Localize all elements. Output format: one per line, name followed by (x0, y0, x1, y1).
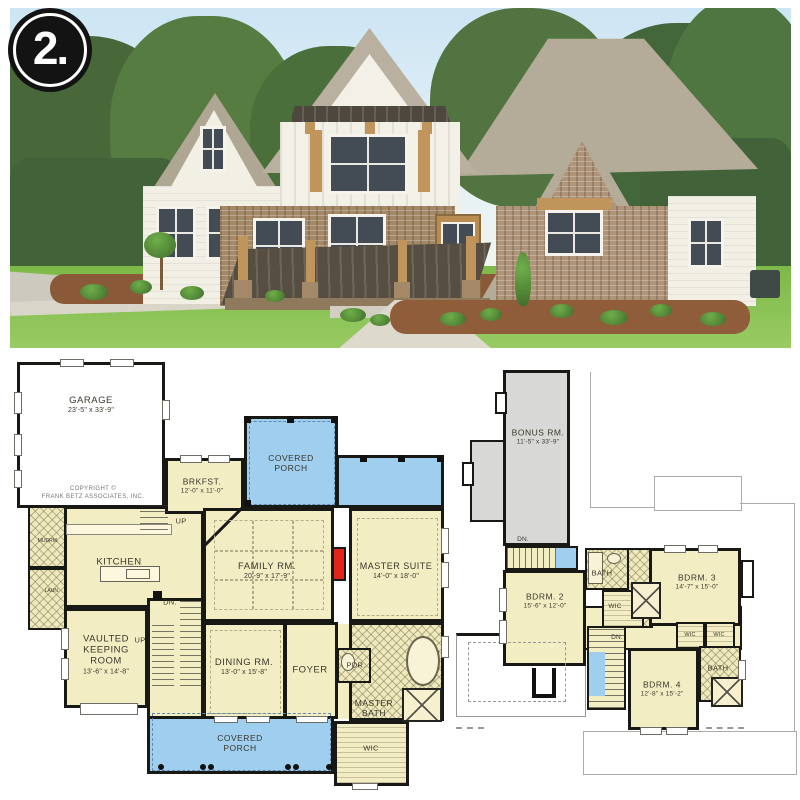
window (246, 716, 270, 723)
porch-column (293, 764, 299, 770)
room-label-bdrm2: BDRM. 2 15'-6" x 12'-0" (524, 592, 567, 611)
shrub (180, 286, 204, 300)
window (14, 434, 22, 456)
island-cooktop (126, 569, 150, 579)
roof-outline (794, 503, 795, 731)
room-label-keeping: VAULTED KEEPING ROOM 13'-6" x 14'-8" (75, 634, 137, 677)
porch-column (287, 416, 294, 423)
stair-label-up: UP (134, 637, 145, 646)
porch-column (244, 500, 251, 507)
window (352, 783, 378, 790)
room-label-brkfst: BRKFST. 12'-0" x 11'-0" (181, 477, 224, 496)
dormer-notch (495, 392, 507, 414)
window (664, 545, 686, 553)
room-label-bath-bottom: BATH (708, 665, 729, 674)
room-label-bonus: BONUS RM. 11'-5" x 33'-9" (512, 428, 565, 447)
bracket (365, 122, 375, 134)
window (441, 528, 449, 554)
room-label-master-suite: MASTER SUITE 14'-0" x 18'-0" (360, 561, 433, 581)
window (688, 218, 724, 268)
roof-outline (740, 503, 795, 504)
window (738, 660, 746, 680)
roof-outline (590, 372, 591, 507)
room-label-master-bath: MASTER BATH (348, 698, 400, 718)
shrub (550, 304, 574, 318)
fireplace (332, 547, 346, 581)
roof-outline (590, 507, 655, 508)
window-header (537, 198, 611, 210)
window (640, 727, 662, 735)
shower-top (631, 582, 661, 619)
room-label-wic-c: WIC (713, 632, 724, 638)
window (110, 359, 134, 367)
stair-label-up-back: UP (175, 518, 186, 527)
room-label-wic-master: WIC (363, 745, 378, 754)
porch-column (158, 764, 164, 770)
window (214, 716, 238, 723)
room-label-laun: LAUN. (45, 589, 60, 595)
shrub (340, 308, 366, 322)
window (208, 455, 230, 463)
window (180, 455, 202, 463)
porch-column (360, 455, 367, 462)
room-label-foyer: FOYER (292, 664, 327, 675)
porch-column (244, 416, 251, 423)
room-label-bath-top: BATH (592, 570, 613, 579)
room-label-mudrm: MUDRM. (38, 539, 59, 545)
window (666, 727, 688, 735)
porch-metal-roof (219, 242, 492, 305)
room-label-garage: GARAGE 23'-5" x 33'-9" (68, 395, 114, 415)
window (162, 400, 170, 420)
window (61, 658, 69, 680)
shrub (650, 304, 672, 317)
window-bay (741, 560, 754, 598)
window (499, 588, 507, 612)
shrub (265, 290, 285, 302)
shrub (80, 284, 108, 300)
room-bonus (503, 370, 570, 546)
dormer-window (200, 126, 226, 172)
roof-dashed-line (456, 727, 484, 729)
porch-column (326, 764, 332, 770)
shrub (440, 312, 466, 326)
item-number-badge: 2. (8, 8, 92, 92)
roof-outline (583, 731, 797, 775)
room-wic-master (334, 721, 409, 786)
window (14, 392, 22, 414)
window (545, 210, 603, 256)
porch-column (285, 764, 291, 770)
shrub (700, 312, 726, 326)
window-trim (310, 130, 322, 192)
bath-sink (607, 553, 621, 564)
upper-window (328, 134, 408, 194)
kitchen-sink (153, 591, 162, 600)
window (441, 636, 449, 658)
window (14, 470, 22, 488)
window-trim (418, 130, 430, 192)
room-label-covered-porch-top: COVERED PORCH (262, 453, 320, 473)
window (61, 628, 69, 650)
bay-window (80, 703, 138, 715)
room-label-wic-b: WIC (684, 632, 695, 638)
window (60, 359, 84, 367)
room-label-bdrm3: BDRM. 3 14'-7" x 15'-0" (676, 573, 719, 592)
room-covered-porch-top-right (336, 455, 444, 508)
stair-label-dn-bonus: DN. (517, 536, 529, 544)
room-label-wic-a: WIC (608, 603, 621, 611)
stair-label-dn: DN. (163, 599, 177, 608)
roof-outline (654, 476, 742, 511)
front-door-opening (296, 716, 328, 723)
stair-label-dn-main: DN. (611, 634, 623, 642)
stairs-down-main (180, 600, 202, 686)
room-label-pdr: PDR. (346, 662, 365, 671)
porch-column (437, 455, 444, 462)
window (698, 545, 718, 553)
cypress (515, 252, 531, 306)
stairs-bonus-skylight (556, 548, 576, 568)
shrub (370, 314, 390, 326)
metal-accent-roof (290, 106, 450, 122)
room-label-family: FAMILY RM. 20'-9" x 17'-9" (238, 561, 296, 581)
porch-column (208, 764, 214, 770)
window (441, 562, 449, 588)
master-shower (402, 688, 442, 722)
porch-column (200, 764, 206, 770)
master-tub (406, 636, 440, 686)
badge-number: 2. (8, 8, 92, 92)
room-bonus-ext (470, 440, 505, 522)
house-photo (10, 8, 791, 348)
room-label-covered-porch-bottom: COVERED PORCH (209, 733, 271, 753)
utility-box (750, 270, 780, 298)
stairs-main-skylight (589, 652, 605, 696)
room-mudroom (28, 506, 68, 568)
shrub (480, 308, 502, 321)
room-laundry (28, 568, 68, 630)
stairs-up-back (140, 500, 168, 530)
porch-column (331, 416, 338, 423)
sapling-leaves (144, 232, 176, 258)
shrub (130, 280, 152, 294)
shrub (600, 310, 628, 325)
copyright: COPYRIGHT © FRANK BETZ ASSOCIATES, INC. (42, 486, 145, 502)
room-label-dining: DINING RM. 13'-0" x 15'-8" (215, 657, 273, 677)
ceiling-beam (215, 550, 323, 552)
shower-bottom (711, 677, 743, 707)
dormer-notch (462, 462, 474, 486)
open-below-wall (532, 694, 556, 698)
stairs-up-main (152, 622, 174, 686)
roof-dashed-line (706, 727, 744, 729)
room-label-bdrm4: BDRM. 4 12'-8" x 15'-2" (641, 680, 684, 699)
room-label-kitchen: KITCHEN (96, 556, 141, 567)
porch-column (398, 455, 405, 462)
window (499, 620, 507, 644)
